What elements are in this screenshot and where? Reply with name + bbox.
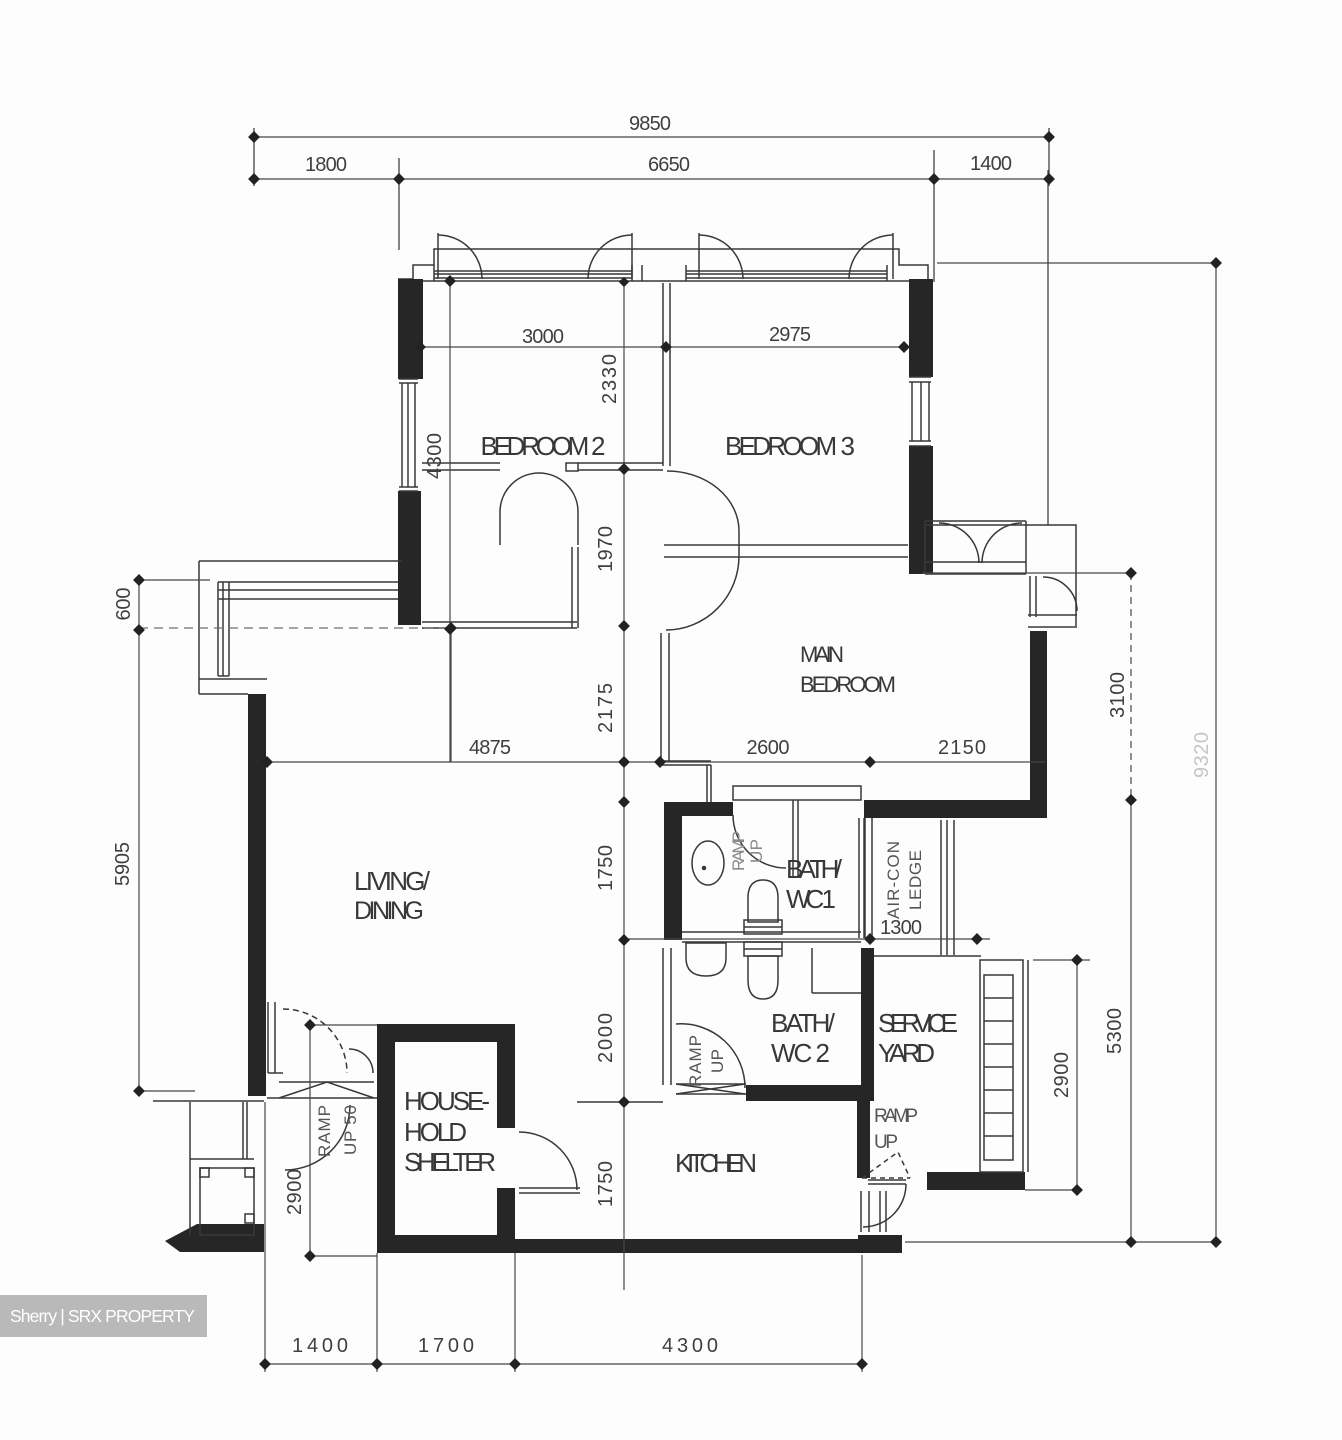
- svg-text:MAIN: MAIN: [800, 642, 844, 667]
- svg-text:UP: UP: [708, 1049, 727, 1073]
- svg-text:2000: 2000: [595, 1013, 617, 1063]
- svg-text:RAMP: RAMP: [874, 1106, 918, 1127]
- svg-text:4300: 4300: [424, 433, 446, 479]
- svg-text:SHELTER: SHELTER: [404, 1147, 496, 1177]
- svg-text:2600: 2600: [747, 737, 790, 759]
- svg-text:3000: 3000: [522, 326, 564, 348]
- svg-text:BATH/: BATH/: [786, 854, 843, 884]
- svg-text:HOLD: HOLD: [404, 1117, 467, 1147]
- svg-text:9320: 9320: [1191, 732, 1213, 778]
- svg-text:KITCHEN: KITCHEN: [675, 1148, 757, 1178]
- svg-text:1400: 1400: [970, 153, 1012, 175]
- svg-text:6650: 6650: [648, 154, 690, 176]
- svg-text:2150: 2150: [938, 737, 986, 759]
- svg-text:4875: 4875: [469, 737, 511, 759]
- svg-text:BEDROOM: BEDROOM: [800, 672, 896, 697]
- svg-text:LIVING/: LIVING/: [354, 866, 431, 896]
- svg-text:UP 50: UP 50: [341, 1105, 360, 1155]
- svg-text:YARD: YARD: [878, 1038, 935, 1068]
- svg-text:LEDGE: LEDGE: [906, 850, 925, 910]
- svg-text:1800: 1800: [305, 154, 347, 176]
- svg-text:RAMP: RAMP: [729, 831, 748, 871]
- svg-text:UP: UP: [747, 839, 766, 863]
- svg-text:2175: 2175: [595, 683, 617, 733]
- svg-text:BATH/: BATH/: [771, 1008, 836, 1038]
- svg-text:RAMP: RAMP: [686, 1035, 705, 1087]
- svg-text:BEDROOM 3: BEDROOM 3: [725, 431, 855, 461]
- svg-text:1750: 1750: [595, 1161, 617, 1207]
- svg-text:1300: 1300: [880, 917, 922, 939]
- svg-text:3100: 3100: [1107, 672, 1129, 718]
- svg-text:2330: 2330: [599, 354, 621, 404]
- svg-text:2900: 2900: [1051, 1052, 1073, 1098]
- svg-text:BEDROOM 2: BEDROOM 2: [481, 431, 606, 461]
- svg-text:SERVICE: SERVICE: [878, 1008, 958, 1038]
- svg-text:5905: 5905: [112, 842, 134, 886]
- svg-text:1970: 1970: [595, 526, 617, 572]
- svg-text:UP: UP: [874, 1132, 898, 1153]
- svg-text:600: 600: [113, 588, 135, 621]
- svg-text:9850: 9850: [629, 113, 671, 135]
- svg-text:5300: 5300: [1104, 1008, 1126, 1054]
- svg-text:DINING: DINING: [354, 897, 424, 925]
- svg-text:2975: 2975: [769, 324, 811, 346]
- svg-text:WC 2: WC 2: [771, 1038, 830, 1068]
- svg-text:AIR-CON: AIR-CON: [884, 841, 903, 919]
- svg-text:2900: 2900: [284, 1169, 306, 1215]
- svg-text:HOUSE-: HOUSE-: [404, 1086, 490, 1116]
- svg-text:WC 1: WC 1: [786, 884, 836, 914]
- svg-text:Sherry | SRX PROPERTY: Sherry | SRX PROPERTY: [10, 1306, 195, 1326]
- svg-text:RAMP: RAMP: [315, 1105, 334, 1157]
- svg-text:1750: 1750: [595, 845, 617, 891]
